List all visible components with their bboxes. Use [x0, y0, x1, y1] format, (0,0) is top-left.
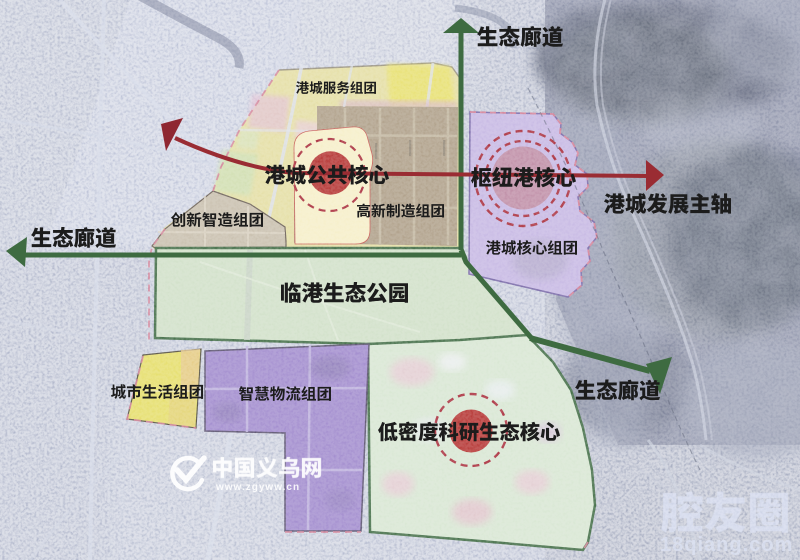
- svg-text:18qiang.com: 18qiang.com: [660, 534, 793, 556]
- svg-text:www.zgyww.cn: www.zgyww.cn: [215, 482, 300, 493]
